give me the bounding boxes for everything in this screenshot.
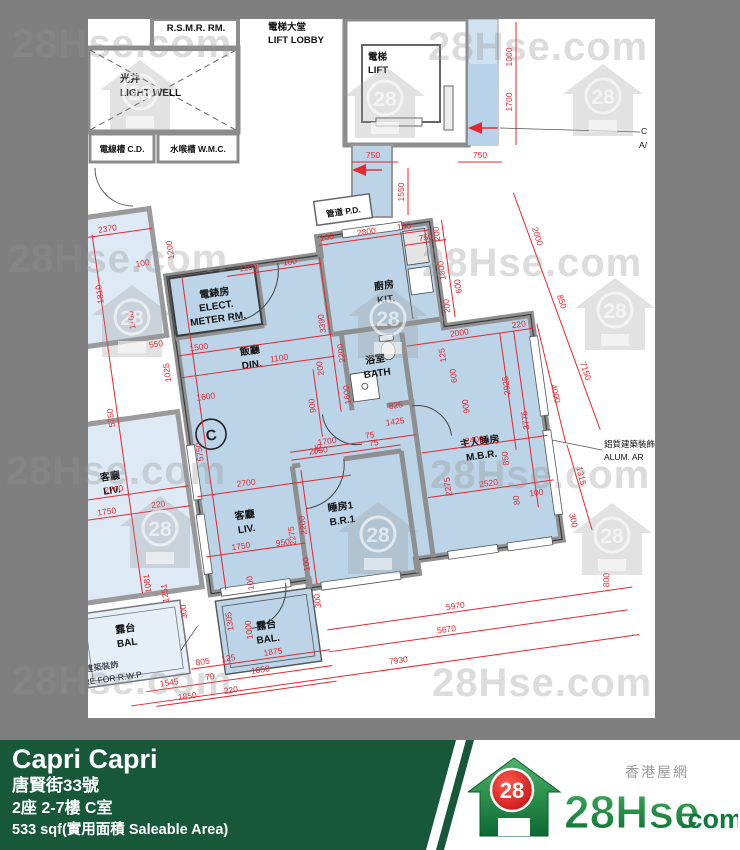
watermark-text: 28Hse.com: [422, 241, 642, 285]
dim: 1700: [504, 92, 514, 111]
dim: 200: [430, 226, 442, 242]
dim: 75: [312, 443, 323, 454]
watermark-text: 28Hse.com: [12, 22, 232, 66]
dim: 1550: [396, 182, 406, 201]
lift-slit: [444, 86, 453, 130]
dim: 125: [436, 347, 448, 363]
corner-fragment-2: A/: [639, 140, 648, 150]
house-icon: 28: [468, 758, 560, 836]
dim: 750: [473, 150, 487, 160]
dim: 75: [364, 429, 375, 440]
lift-lobby-label-en: LIFT LOBBY: [268, 35, 325, 46]
dim: 750: [366, 150, 380, 160]
dim: 100: [282, 256, 298, 268]
dim: 300: [311, 593, 323, 609]
dim: 900: [306, 398, 318, 414]
lift-lobby-label-zh: 電梯大堂: [268, 21, 307, 33]
watermark-text: 28Hse.com: [430, 453, 650, 497]
dim: 300: [178, 604, 190, 620]
corner-fragment-1: C: [641, 126, 647, 136]
watermark-text: 28Hse.com: [432, 661, 652, 705]
wmc-label: 水喉槽 W.M.C.: [169, 144, 226, 154]
watermark-text: 28Hse.com: [8, 237, 228, 281]
28hse-logo: 28 28Hse .com: [468, 752, 738, 847]
floor-plan: 28 光井 LIGHT WELL R.S.M.R. RM. 電線槽 C.D. 水…: [0, 0, 740, 740]
floorplan-page: 28 光井 LIGHT WELL R.S.M.R. RM. 電線槽 C.D. 水…: [0, 0, 740, 850]
dim: 150: [396, 220, 412, 232]
dim: 950: [275, 536, 291, 548]
dim: 200: [441, 298, 453, 314]
logo-number: 28: [500, 778, 524, 803]
corridor-lower: [468, 64, 498, 145]
cd-label: 電線槽 C.D.: [100, 144, 145, 154]
dim: 600: [447, 368, 459, 384]
alum-label-zh: 鋁質建築裝飾: [604, 439, 655, 449]
dim: 900: [460, 398, 472, 414]
dim: 100: [319, 231, 335, 243]
watermark-text: 28Hse.com: [428, 25, 648, 69]
lift-label-zh: 電梯: [368, 51, 388, 63]
footer-bar: Capri Capri 唐賢街33號 2座 2-7樓 C室 533 sqf(實用…: [0, 740, 740, 850]
dim: 825: [388, 399, 404, 411]
watermark-text: 28Hse.com: [12, 659, 232, 703]
dim: 220: [511, 318, 527, 330]
dim: 200: [314, 360, 326, 376]
dim: 100: [300, 556, 312, 572]
dim: 100: [244, 575, 256, 591]
watermark-text: 28Hse.com: [6, 449, 226, 493]
logo-suffix: .com: [680, 804, 738, 834]
